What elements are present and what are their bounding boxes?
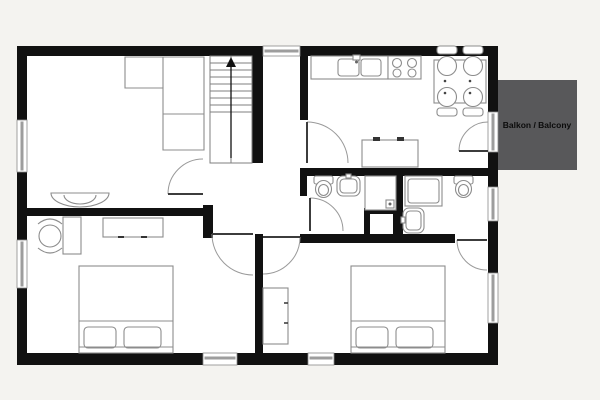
wardrobe <box>263 288 288 344</box>
bathtub-ensuite <box>405 176 442 206</box>
dining-chairs <box>463 108 483 116</box>
toilet-wc <box>314 176 333 198</box>
dining-chairs <box>469 80 472 83</box>
stove <box>393 69 401 77</box>
kitchen-counter-sink <box>355 61 358 64</box>
shower <box>389 203 392 206</box>
stove <box>408 59 417 68</box>
window-glass <box>265 50 299 53</box>
dining-chairs <box>444 80 447 83</box>
kitchen-counter-sink <box>311 55 388 79</box>
bathtub-ensuite <box>408 179 439 203</box>
wall-segment <box>488 323 498 365</box>
wall-segment <box>488 46 498 112</box>
wall-segment <box>17 208 203 216</box>
wall-segment <box>300 56 308 120</box>
dining-chairs <box>437 46 457 54</box>
wall-segment <box>17 46 263 56</box>
sideboard <box>362 140 418 167</box>
dining-chairs <box>438 57 457 76</box>
staircase <box>210 56 252 163</box>
washbasin-ensuite <box>406 211 421 230</box>
floorplan-drawing: Balkon / Balcony <box>0 0 600 400</box>
sideboard <box>373 137 380 141</box>
stove <box>388 56 421 79</box>
stove <box>393 59 402 68</box>
sideboard <box>362 137 418 167</box>
wall-segment <box>334 353 498 365</box>
window-glass <box>205 357 236 360</box>
washbasin-ensuite <box>401 208 424 233</box>
stove <box>408 69 416 77</box>
floorplan-page: Balkon / Balcony <box>0 0 600 400</box>
desk <box>63 217 81 254</box>
toilet-ensuite <box>459 185 469 196</box>
window-glass <box>492 275 495 322</box>
dining-chairs <box>469 92 472 95</box>
window-glass <box>310 357 333 360</box>
sideboard <box>397 137 404 141</box>
wall-segment <box>17 172 27 240</box>
kitchen-counter-sink <box>353 55 360 60</box>
window-glass <box>21 122 24 171</box>
wall-segment <box>17 46 27 120</box>
double-bed-2 <box>356 327 388 348</box>
dining-chairs <box>464 57 483 76</box>
toilet-wc <box>319 185 329 196</box>
dresser <box>103 218 163 237</box>
double-bed-2 <box>396 327 433 348</box>
dining-chairs <box>464 88 483 107</box>
wall-segment <box>300 176 307 196</box>
dresser <box>103 218 163 237</box>
shaft-opening <box>370 214 393 234</box>
double-bed-2 <box>351 266 445 353</box>
dining-chairs <box>437 108 457 116</box>
window-glass <box>492 114 495 151</box>
wardrobe <box>263 288 288 344</box>
desk-chair <box>39 225 61 247</box>
dining-chairs <box>444 92 447 95</box>
double-bed-1 <box>84 327 116 348</box>
dining-chairs <box>463 46 483 54</box>
wall-segment <box>255 234 263 353</box>
shower <box>365 176 396 210</box>
toilet-ensuite <box>454 176 473 198</box>
wall-segment <box>488 221 498 273</box>
stove <box>388 56 421 79</box>
window-glass <box>492 189 495 220</box>
window-glass <box>21 242 24 287</box>
wall-segment <box>17 353 203 365</box>
dining-chairs <box>438 88 457 107</box>
washbasin-ensuite <box>401 217 405 223</box>
kitchen-counter-sink <box>361 59 381 76</box>
balcony-label: Balkon / Balcony <box>503 120 572 130</box>
double-bed-1 <box>79 266 173 353</box>
double-bed-1 <box>124 327 161 348</box>
wall-segment <box>252 56 263 163</box>
wall-segment <box>237 353 308 365</box>
wall-segment <box>203 205 213 238</box>
desk <box>63 217 81 254</box>
washbasin-wc <box>346 174 351 178</box>
washbasin-wc <box>337 174 360 196</box>
washbasin-wc <box>340 179 357 193</box>
